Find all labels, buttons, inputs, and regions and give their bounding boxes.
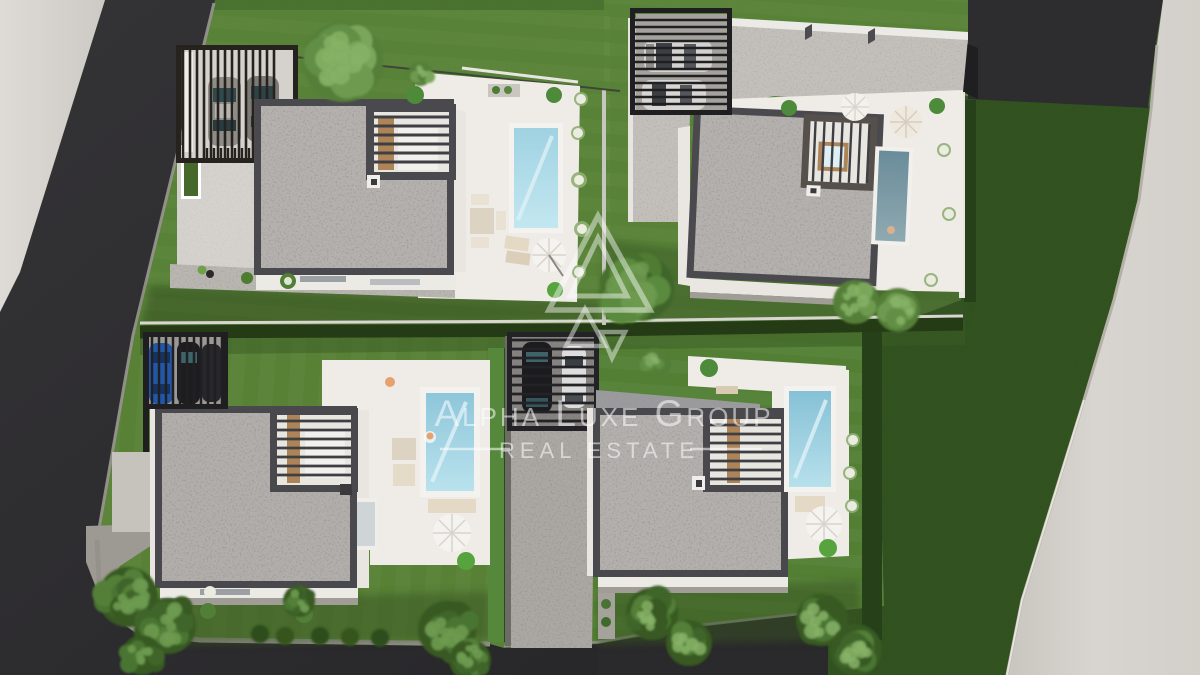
svg-text:Alpha Luxe Group: Alpha Luxe Group <box>434 393 773 434</box>
svg-text:REAL ESTATE: REAL ESTATE <box>499 438 699 463</box>
